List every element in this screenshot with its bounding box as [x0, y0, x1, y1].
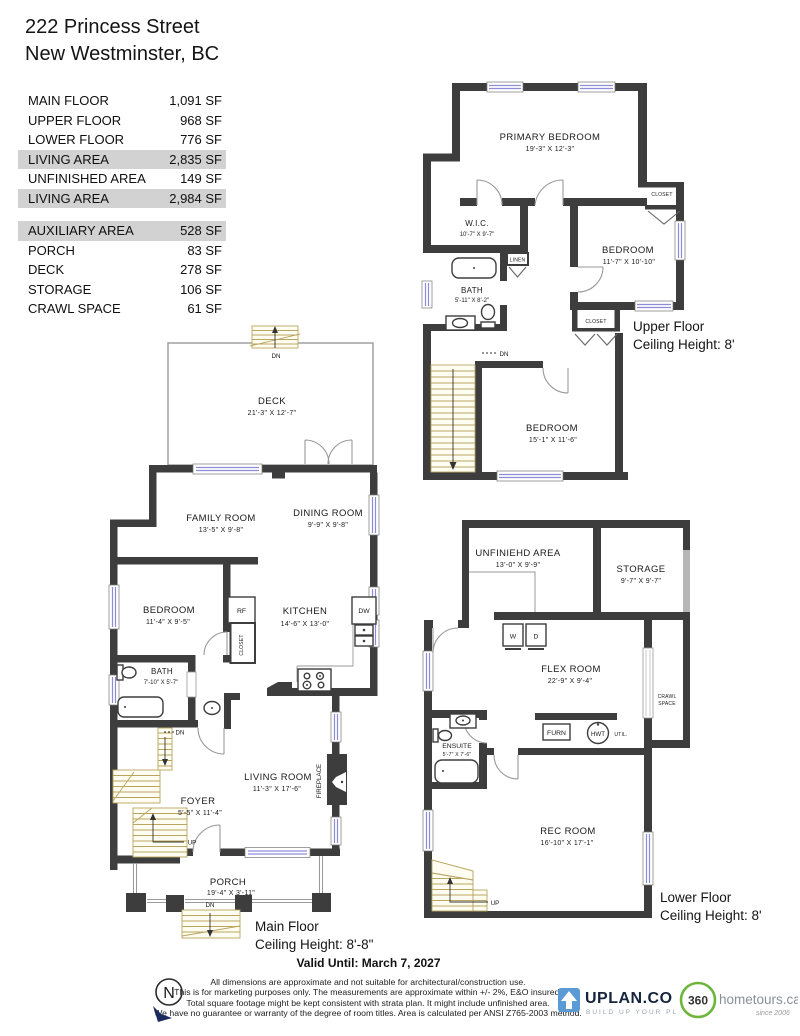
stairs [113, 728, 187, 857]
area-label: MAIN FLOOR [28, 93, 109, 108]
room-label-bedroom3: BEDROOM [526, 423, 578, 434]
area-row: LOWER FLOOR776 SF [18, 130, 226, 150]
porch-stairs [182, 910, 240, 938]
dims-living-room: 11'-3" X 17'-6" [253, 786, 301, 793]
floor-caption: Main Floor Ceiling Height: 8'-8" [255, 919, 374, 952]
area-row: MAIN FLOOR1,091 SF [18, 91, 226, 111]
north-arrow-icon: N [148, 976, 194, 1026]
dims-flex-room: 22'-9" X 9'-4" [548, 678, 593, 685]
dims-wic: 10'-7" X 9'-7" [460, 232, 495, 238]
room-label-storage: STORAGE [616, 564, 665, 575]
dims-bedroom3: 15'-1" X 11'-6" [529, 437, 577, 444]
dims-porch: 19'-4" X 3'-11" [207, 890, 255, 897]
caption-lower-floor: Lower Floor [660, 890, 732, 905]
hometours-since: since 2006 [756, 1010, 790, 1017]
label-crawl-2: SPACE [658, 701, 676, 707]
area-label: UPPER FLOOR [28, 113, 121, 128]
label-linen: LINEN [510, 258, 526, 264]
label-crawl-1: CRAWL [658, 694, 677, 700]
dims-deck: 21'-3" X 12'-7" [248, 410, 297, 417]
dims-storage: 9'-7" X 9'-7" [621, 578, 662, 585]
area-value: 61 SF [187, 301, 222, 316]
valid-until-text: Valid Until: March 7, 2027 [120, 956, 617, 970]
label-closet: CLOSET [239, 634, 245, 655]
caption-main-ceiling: Ceiling Height: 8'-8" [255, 937, 374, 952]
dims-bedroom: 11'-4" X 9'-5" [146, 619, 190, 626]
label-rf: RF [237, 608, 246, 615]
label-closet-a: CLOSET [651, 192, 672, 198]
label-dn-deck: DN [272, 353, 281, 360]
area-row-highlight: LIVING AREA2,835 SF [18, 150, 226, 170]
area-value: 2,835 SF [169, 152, 222, 167]
area-label: LOWER FLOOR [28, 132, 124, 147]
address-line-1: 222 Princess Street [25, 14, 219, 41]
area-label: LIVING AREA [28, 152, 109, 167]
dims-family-room: 13'-5" X 9'-8" [199, 527, 244, 534]
dims-ensuite: 5'-7" X 7'-6" [443, 752, 472, 758]
room-label-living-room: LIVING ROOM [244, 772, 312, 783]
label-up: UP [491, 900, 500, 907]
caption-upper-floor: Upper Floor [633, 319, 705, 334]
area-summary-table: MAIN FLOOR1,091 SF UPPER FLOOR968 SF LOW… [18, 91, 226, 319]
hometours-number: 360 [688, 994, 708, 1008]
caption-lower-ceiling: Ceiling Height: 8' [660, 908, 762, 923]
unfinished-boundary [469, 572, 535, 612]
label-dn: DN [500, 351, 509, 358]
area-label: UNFINISHED AREA [28, 171, 146, 186]
table-gap [18, 208, 226, 221]
caption-main-floor: Main Floor [255, 919, 319, 934]
uplan-tagline: BUILD UP YOUR PLAN [586, 1009, 676, 1016]
room-label-flex-room: FLEX ROOM [541, 664, 601, 675]
room-label-bath: BATH [151, 667, 173, 676]
dims-rec-room: 16'-10" X 17'-1" [541, 840, 594, 847]
deck-stairs [250, 326, 300, 348]
label-washer: W [510, 634, 517, 641]
label-util: UTIL. [614, 732, 627, 738]
label-fireplace: FIREPLACE [316, 764, 323, 798]
area-label: CRAWL SPACE [28, 301, 121, 316]
area-row: DECK278 SF [18, 260, 226, 280]
area-value: 106 SF [180, 282, 222, 297]
area-label: LIVING AREA [28, 191, 109, 206]
caption-upper-ceiling: Ceiling Height: 8' [633, 337, 735, 352]
floor-caption: Lower Floor Ceiling Height: 8' [660, 890, 762, 923]
area-label: AUXILIARY AREA [28, 223, 134, 238]
area-value: 776 SF [180, 132, 222, 147]
area-value: 149 SF [180, 171, 222, 186]
dims-bedroom2: 11'-7" X 10'-10" [603, 259, 656, 266]
room-label-deck: DECK [258, 396, 286, 407]
north-pointer [153, 1006, 172, 1022]
floor-caption: Upper Floor Ceiling Height: 8' [633, 319, 735, 352]
room-label-porch: PORCH [210, 877, 246, 888]
light-walls [683, 550, 690, 612]
dims-primary-bedroom: 19'-3" X 12'-3" [526, 146, 575, 153]
stairs [431, 353, 496, 472]
label-up: UP [188, 840, 197, 847]
area-value: 968 SF [180, 113, 222, 128]
label-dryer: D [534, 634, 539, 641]
floor-plan-page: 222 Princess Street New Westminster, BC … [0, 0, 800, 1036]
area-row: UNFINISHED AREA149 SF [18, 169, 226, 189]
label-dw: DW [358, 608, 370, 615]
address-line-2: New Westminster, BC [25, 41, 219, 68]
area-row: UPPER FLOOR968 SF [18, 111, 226, 131]
room-label-unfinished: UNFINIEHD AREA [475, 548, 561, 559]
area-row-highlight: AUXILIARY AREA528 SF [18, 221, 226, 241]
room-label-foyer: FOYER [181, 796, 216, 807]
room-label-bedroom2: BEDROOM [602, 245, 654, 256]
area-label: PORCH [28, 243, 75, 258]
area-value: 278 SF [180, 262, 222, 277]
hometours-domain: hometours.ca [719, 992, 798, 1007]
area-value: 83 SF [187, 243, 222, 258]
area-row: STORAGE106 SF [18, 280, 226, 300]
label-closet-b: CLOSET [585, 319, 606, 325]
room-label-primary-bedroom: PRIMARY BEDROOM [500, 132, 601, 143]
room-label-bedroom: BEDROOM [143, 605, 195, 616]
room-label-bath: BATH [461, 286, 483, 295]
area-value: 528 SF [180, 223, 222, 238]
room-label-ensuite: ENSUITE [442, 743, 472, 750]
dims-foyer: 5'-5" X 11'-4" [178, 810, 222, 817]
room-label-rec-room: REC ROOM [540, 826, 595, 837]
north-letter: N [163, 985, 175, 1002]
room-label-kitchen: KITCHEN [283, 606, 328, 617]
area-row-highlight: LIVING AREA2,984 SF [18, 189, 226, 209]
area-row: CRAWL SPACE61 SF [18, 299, 226, 319]
area-label: DECK [28, 262, 64, 277]
dims-dining-room: 9'-9" X 9'-8" [308, 522, 349, 529]
label-dn-stairs: DN [176, 730, 185, 737]
dims-unfinished: 13'-0" X 9'-9" [496, 562, 541, 569]
room-label-wic: W.I.C. [465, 219, 489, 228]
area-value: 1,091 SF [169, 93, 222, 108]
room-label-family-room: FAMILY ROOM [186, 513, 256, 524]
area-value: 2,984 SF [169, 191, 222, 206]
dims-bath: 5'-11" X 8'-2" [455, 298, 489, 304]
stairs [432, 860, 488, 911]
dims-kitchen: 14'-6" X 13'-0" [281, 621, 330, 628]
label-furn: FURN [547, 730, 566, 737]
area-row: PORCH83 SF [18, 241, 226, 261]
dims-bath: 7'-10" X 5'-7" [144, 680, 179, 686]
label-hwt: HWT [591, 731, 605, 738]
label-dn-porch: DN [206, 902, 215, 909]
uplan-logo: UPLAN.CO BUILD UP YOUR PLAN [556, 982, 676, 1020]
area-label: STORAGE [28, 282, 91, 297]
hometours-logo: 360 hometours.ca since 2006 [676, 978, 798, 1024]
property-address: 222 Princess Street New Westminster, BC [25, 14, 219, 68]
room-label-dining-room: DINING ROOM [293, 508, 363, 519]
main-floor-plan: DECK 21'-3" X 12'-7" FAMILY ROOM 13'-5" … [100, 325, 410, 970]
lower-floor-plan: UNFINIEHD AREA 13'-0" X 9'-9" STORAGE 9'… [420, 508, 780, 928]
upper-floor-plan: PRIMARY BEDROOM 19'-3" X 12'-3" W.I.C. 1… [420, 78, 780, 493]
uplan-name: UPLAN.CO [585, 990, 673, 1007]
